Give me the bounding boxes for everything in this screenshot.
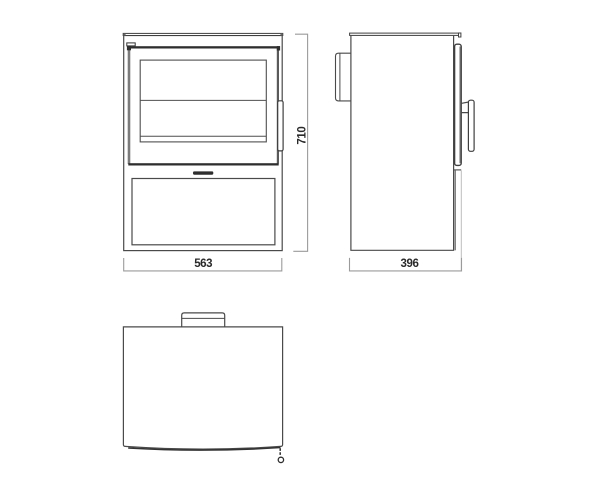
svg-text:563: 563 [194, 258, 212, 270]
svg-text:710: 710 [297, 127, 309, 145]
svg-text:396: 396 [401, 258, 419, 270]
